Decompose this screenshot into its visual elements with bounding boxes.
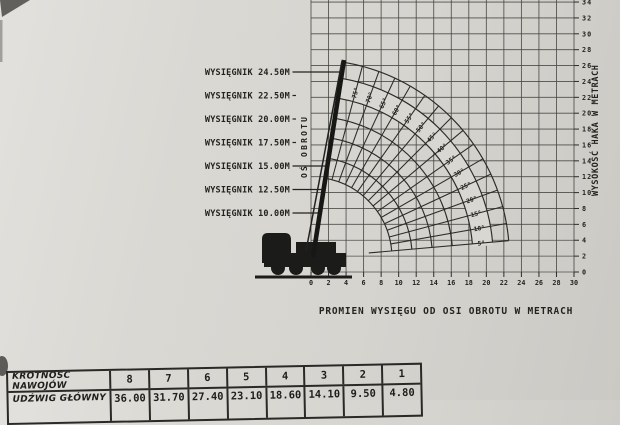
x-tick-label: 8 (379, 279, 383, 287)
table-cell: 6 (189, 369, 228, 388)
y-tick-label: 34 (582, 0, 592, 7)
table-cell: 4.80 (383, 385, 420, 416)
x-tick-label: 6 (362, 279, 366, 287)
crane-wheel (271, 261, 285, 275)
boom-length-labels: WYSIĘGNIK 24.50MWYSIĘGNIK 22.50MWYSIĘGNI… (205, 68, 340, 219)
table-cell: 3 (305, 366, 344, 385)
y-axis-title: WYSOKOŚĆ HAKA W METRACH (589, 64, 601, 196)
scanned-crane-manual-page: { "photo": { "paper_color": "#d9d7d2", "… (0, 0, 620, 400)
table-row-label: UDŹWIG GŁÓWNY (8, 391, 112, 423)
x-tick-label: 22 (500, 279, 508, 287)
table-cell: 2 (344, 365, 383, 384)
x-tick-label: 28 (552, 279, 560, 287)
y-tick-label: 28 (582, 46, 592, 54)
x-tick-label: 16 (447, 279, 455, 287)
x-tick-label: 24 (517, 279, 525, 287)
x-tick-label: 14 (430, 279, 438, 287)
x-tick-label: 2 (326, 279, 330, 287)
x-tick-label: 10 (395, 279, 403, 287)
table-cell: 18.60 (267, 387, 306, 418)
boom-angle-label: 5° (477, 239, 485, 248)
x-tick-label: 0 (309, 279, 313, 287)
x-tick-label: 12 (412, 279, 420, 287)
table-cell: 1 (383, 365, 420, 384)
boom-length-label: WYSIĘGNIK 20.00M (205, 115, 290, 125)
boom-length-label: WYSIĘGNIK 24.50M (205, 68, 290, 78)
y-tick-label: 2 (582, 253, 587, 261)
x-tick-label: 20 (482, 279, 490, 287)
x-tick-label: 26 (535, 279, 543, 287)
paper-edge-mark (0, 20, 3, 62)
table-cell: 27.40 (189, 389, 228, 420)
crane-range-diagram: 0246810121416182022242628300246810121416… (0, 0, 620, 400)
table-cell: 5 (228, 368, 267, 387)
table-cell: 8 (111, 370, 150, 389)
y-tick-label: 32 (582, 14, 592, 22)
y-tick-label: 4 (582, 237, 587, 245)
crane-wheel (327, 261, 341, 275)
boom-length-label: WYSIĘGNIK 22.50M (205, 92, 290, 102)
table-cell: 23.10 (228, 388, 267, 419)
boom-length-label: WYSIĘGNIK 12.50M (205, 186, 290, 196)
rotation-axis-label: OŚ OBROTU (298, 115, 309, 178)
boom-length-label: WYSIĘGNIK 17.50M (205, 139, 290, 149)
y-tick-label: 6 (582, 221, 587, 229)
y-tick-label: 30 (582, 30, 592, 38)
rope-falls-capacity-table: KROTNOŚĆ NAWOJÓW87654321UDŹWIG GŁÓWNY36.… (6, 363, 423, 425)
crane-wheel (289, 261, 303, 275)
y-tick-label: 0 (582, 269, 587, 277)
boom-length-label: WYSIĘGNIK 10.00M (205, 209, 290, 219)
x-tick-label: 30 (570, 279, 578, 287)
table-cell: 4 (266, 367, 305, 386)
table-cell: 31.70 (150, 389, 189, 420)
y-tick-label: 8 (582, 205, 587, 213)
table-cell: 14.10 (306, 386, 345, 417)
table-cell: 36.00 (111, 390, 150, 421)
x-tick-label: 4 (344, 279, 348, 287)
table-row-label: KROTNOŚĆ NAWOJÓW (8, 371, 111, 391)
boom-length-arc (329, 158, 412, 249)
x-tick-label: 18 (465, 279, 473, 287)
table-cell: 9.50 (345, 385, 384, 416)
crane-wheel (311, 261, 325, 275)
boom-length-label: WYSIĘGNIK 15.00M (205, 162, 290, 172)
table-cell: 7 (150, 369, 189, 388)
boom-angle-radial (369, 241, 509, 253)
paper-corner-mark (0, 0, 30, 17)
x-axis-title: PROMIEN WYSIĘGU OD OSI OBROTU W METRACH (319, 306, 573, 317)
